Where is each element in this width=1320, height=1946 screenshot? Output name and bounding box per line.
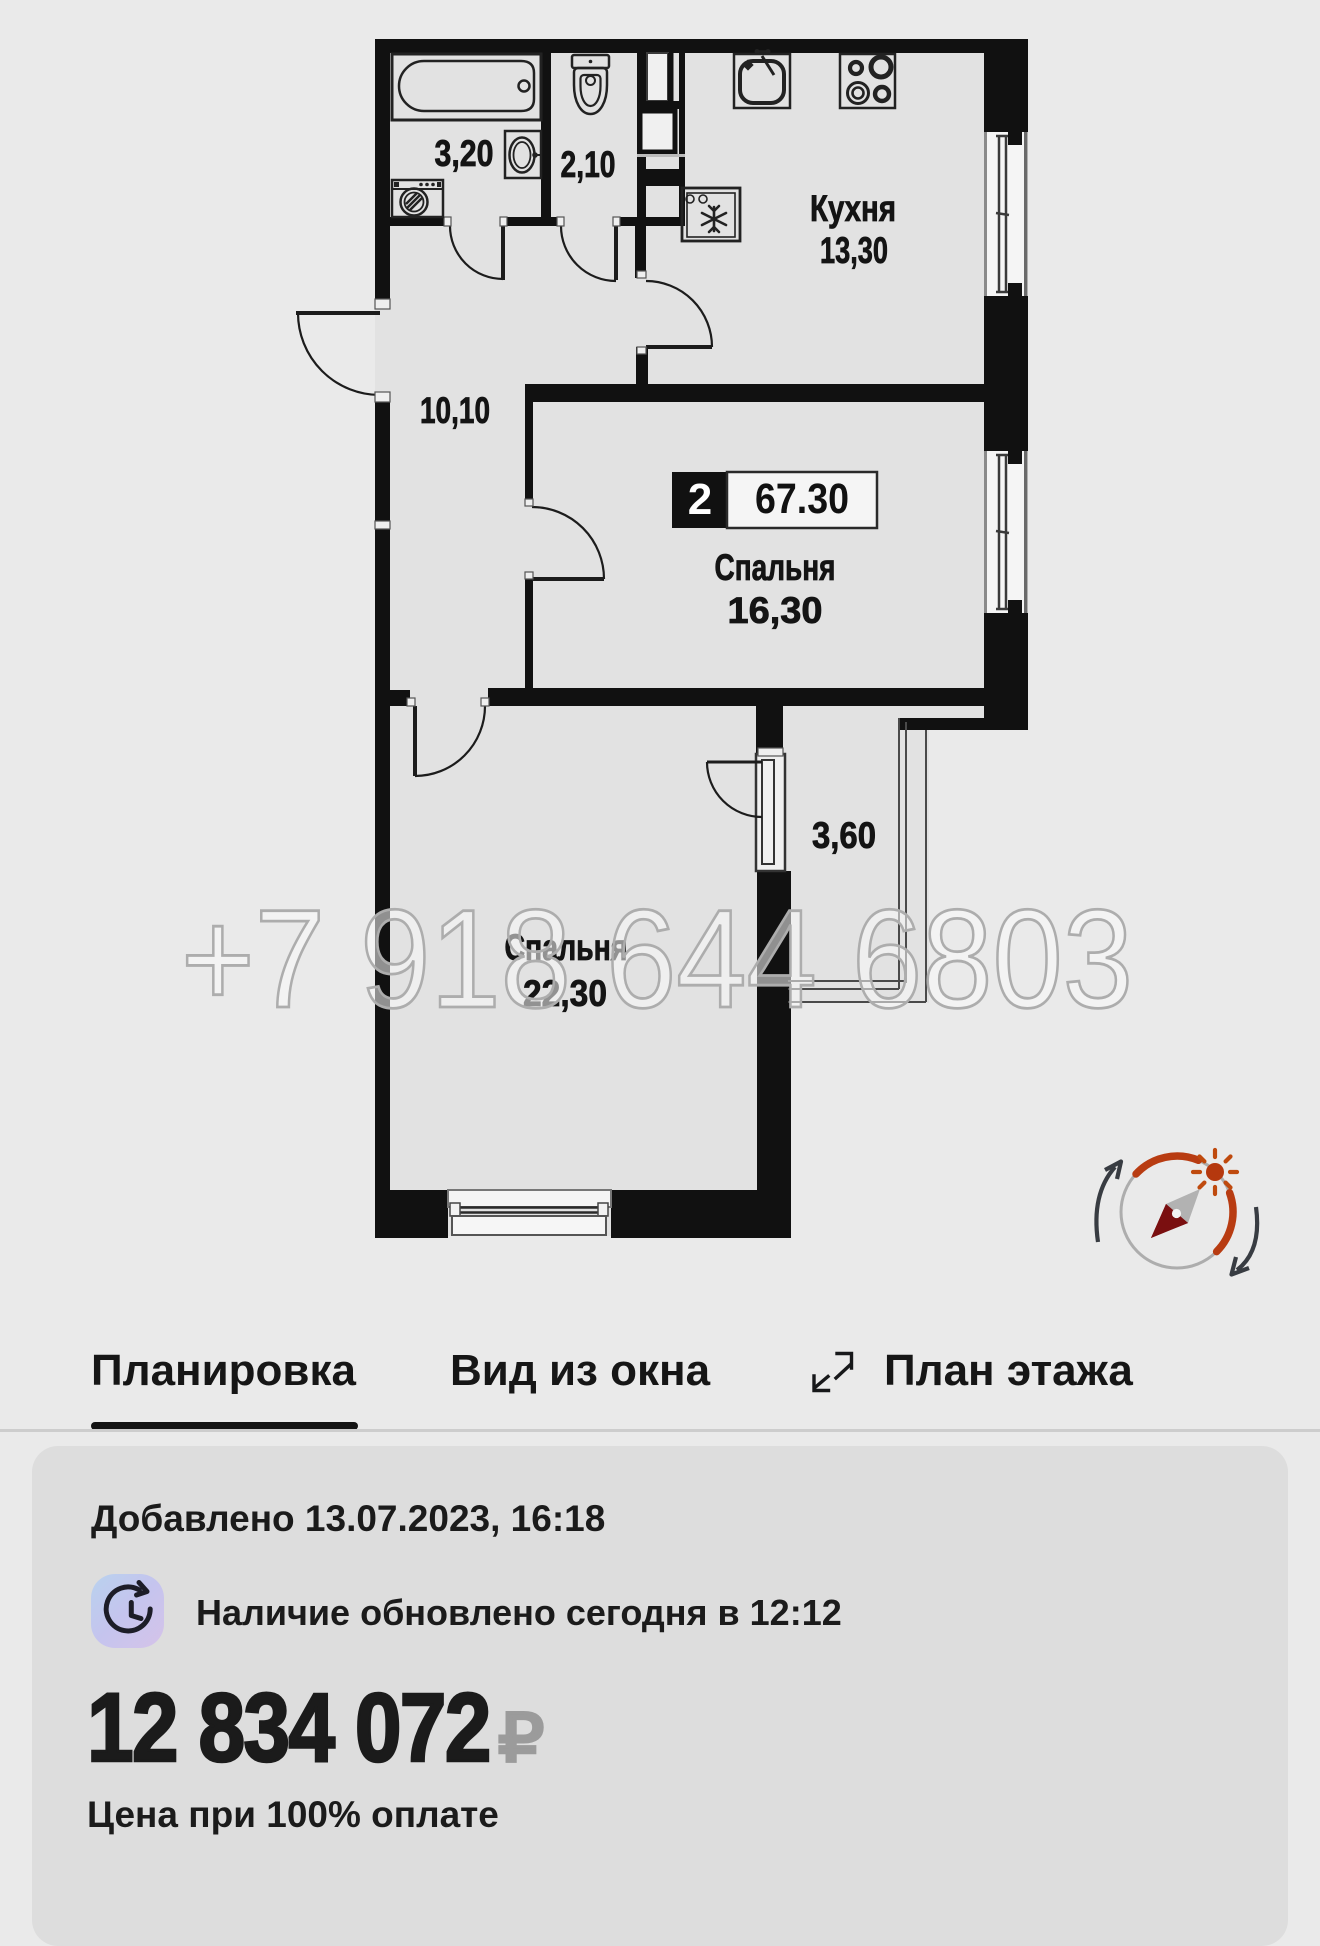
svg-text:Кухня: Кухня — [810, 188, 896, 229]
svg-text:13,30: 13,30 — [820, 230, 888, 271]
svg-text:2,10: 2,10 — [561, 144, 616, 185]
svg-text:10,10: 10,10 — [420, 390, 490, 431]
svg-text:Спальня: Спальня — [715, 547, 836, 588]
svg-text:3,60: 3,60 — [812, 815, 876, 856]
svg-text:16,30: 16,30 — [728, 590, 823, 631]
svg-text:2: 2 — [688, 475, 712, 524]
svg-text:67.30: 67.30 — [755, 475, 849, 523]
svg-text:+7 918 644 6803: +7 918 644 6803 — [181, 880, 1133, 1037]
svg-text:3,20: 3,20 — [435, 133, 494, 174]
